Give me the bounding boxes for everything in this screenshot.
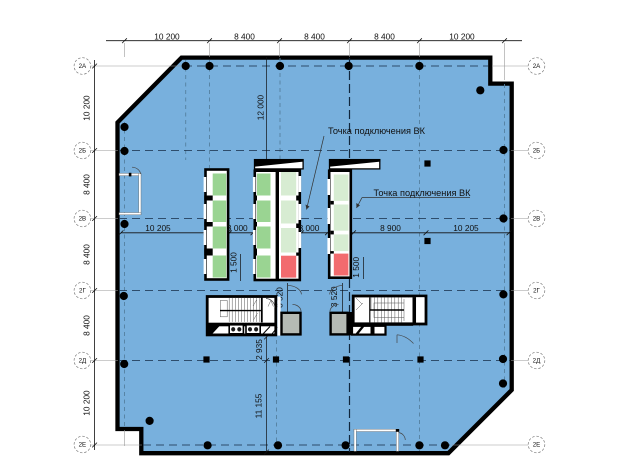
svg-text:12 000: 12 000 <box>256 94 266 120</box>
svg-text:10 200: 10 200 <box>82 390 92 416</box>
svg-text:8 400: 8 400 <box>374 32 395 42</box>
svg-text:Точка подключения ВК: Точка подключения ВК <box>328 126 426 136</box>
svg-text:1 500: 1 500 <box>351 257 361 278</box>
svg-text:2Д: 2Д <box>533 358 541 365</box>
svg-text:2Г: 2Г <box>533 288 540 295</box>
svg-text:Точка подключения ВК: Точка подключения ВК <box>374 188 472 198</box>
svg-text:10 200: 10 200 <box>154 32 180 42</box>
svg-text:2 935: 2 935 <box>254 339 264 360</box>
svg-text:1 500: 1 500 <box>228 252 238 273</box>
svg-text:2Б: 2Б <box>79 148 87 155</box>
svg-text:8 400: 8 400 <box>82 244 92 265</box>
svg-text:10 200: 10 200 <box>82 95 92 121</box>
svg-text:2А: 2А <box>79 63 87 70</box>
svg-text:2В: 2В <box>533 216 541 223</box>
svg-text:3 000: 3 000 <box>299 223 320 233</box>
svg-text:2Д: 2Д <box>79 358 87 365</box>
svg-text:10 205: 10 205 <box>145 223 171 233</box>
svg-text:2А: 2А <box>533 63 541 70</box>
svg-text:8 400: 8 400 <box>82 315 92 336</box>
svg-text:8 900: 8 900 <box>380 223 401 233</box>
svg-text:3 000: 3 000 <box>227 223 248 233</box>
svg-text:2Г: 2Г <box>79 288 86 295</box>
svg-text:2Е: 2Е <box>79 442 87 449</box>
svg-text:8 400: 8 400 <box>234 32 255 42</box>
svg-text:2Е: 2Е <box>533 442 541 449</box>
svg-text:10 200: 10 200 <box>449 32 475 42</box>
svg-text:11 155: 11 155 <box>254 393 264 418</box>
svg-text:2Б: 2Б <box>533 148 541 155</box>
svg-text:2В: 2В <box>79 216 87 223</box>
svg-text:8 400: 8 400 <box>304 32 325 42</box>
svg-text:10 205: 10 205 <box>453 223 479 233</box>
svg-text:8 400: 8 400 <box>82 174 92 195</box>
svg-text:3 520: 3 520 <box>329 286 339 307</box>
